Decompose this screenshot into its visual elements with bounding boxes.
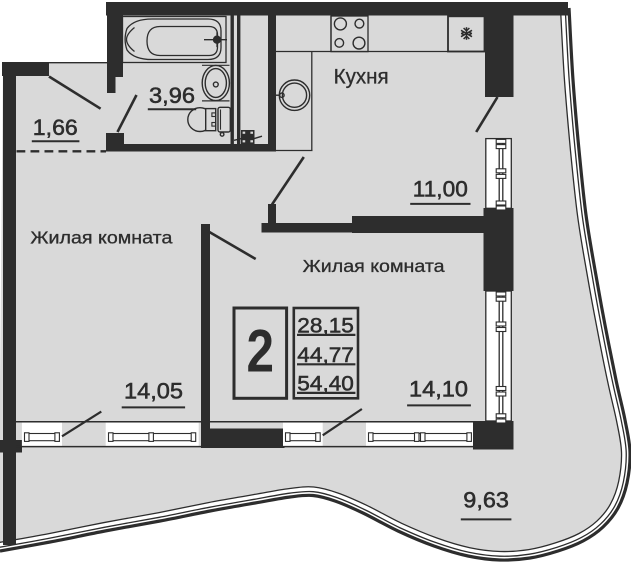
svg-text:2: 2 bbox=[247, 317, 275, 385]
svg-text:1,66: 1,66 bbox=[33, 115, 78, 140]
svg-text:9,63: 9,63 bbox=[463, 488, 509, 513]
svg-text:Кухня: Кухня bbox=[334, 65, 389, 88]
svg-text:Жилая комната: Жилая комната bbox=[30, 228, 172, 248]
svg-text:11,00: 11,00 bbox=[413, 177, 468, 202]
svg-text:14,05: 14,05 bbox=[124, 378, 183, 403]
svg-text:28,15: 28,15 bbox=[297, 313, 354, 337]
svg-text:3,96: 3,96 bbox=[149, 83, 195, 108]
svg-text:Жилая комната: Жилая комната bbox=[303, 256, 445, 276]
svg-text:14,10: 14,10 bbox=[409, 376, 468, 401]
